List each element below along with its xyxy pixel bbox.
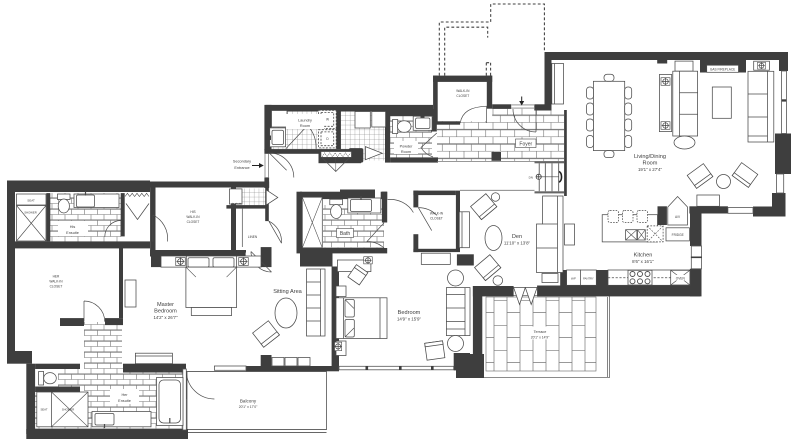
svg-text:CLOSET: CLOSET bbox=[187, 220, 200, 224]
svg-text:GAS FIREPLACE: GAS FIREPLACE bbox=[710, 67, 735, 71]
svg-text:HER: HER bbox=[53, 275, 60, 279]
svg-text:Bedroom: Bedroom bbox=[154, 309, 177, 315]
svg-text:Kitchen: Kitchen bbox=[634, 253, 653, 259]
svg-text:His: His bbox=[70, 225, 76, 229]
svg-text:WALK-IN: WALK-IN bbox=[186, 215, 200, 219]
svg-text:SEAT: SEAT bbox=[27, 199, 35, 203]
svg-text:SHOWER: SHOWER bbox=[62, 408, 75, 412]
svg-text:Bath: Bath bbox=[340, 231, 351, 237]
svg-text:Balcony: Balcony bbox=[240, 399, 257, 404]
svg-text:Foyer: Foyer bbox=[519, 142, 532, 148]
svg-text:Entrance: Entrance bbox=[234, 166, 249, 170]
svg-text:14'2" x 26'7": 14'2" x 26'7" bbox=[153, 315, 178, 320]
svg-text:WALK-IN: WALK-IN bbox=[49, 280, 63, 284]
svg-text:Ensuite: Ensuite bbox=[66, 231, 79, 235]
svg-text:Den: Den bbox=[512, 234, 522, 240]
svg-text:Powder: Powder bbox=[400, 145, 414, 149]
svg-text:SEAT: SEAT bbox=[40, 408, 47, 412]
svg-text:Room: Room bbox=[643, 161, 658, 167]
svg-text:Bedroom: Bedroom bbox=[398, 310, 421, 316]
svg-text:Terrace: Terrace bbox=[534, 330, 547, 334]
svg-text:LINEN: LINEN bbox=[248, 235, 258, 239]
svg-text:Master: Master bbox=[157, 302, 174, 308]
svg-text:20'1" x 17'0": 20'1" x 17'0" bbox=[239, 405, 258, 409]
svg-text:WALK-IN: WALK-IN bbox=[456, 89, 470, 93]
svg-text:FRIDGE: FRIDGE bbox=[672, 233, 684, 237]
svg-text:WALK-IN: WALK-IN bbox=[430, 212, 444, 216]
svg-text:PANTRY: PANTRY bbox=[583, 276, 594, 280]
svg-text:OVEN: OVEN bbox=[676, 276, 686, 280]
svg-text:W/F: W/F bbox=[571, 276, 576, 280]
svg-text:CLOSET: CLOSET bbox=[456, 94, 469, 98]
svg-text:8'6" x 16'1": 8'6" x 16'1" bbox=[632, 259, 654, 264]
svg-text:11'10" x 13'8": 11'10" x 13'8" bbox=[504, 241, 531, 246]
svg-text:A/V: A/V bbox=[675, 215, 681, 219]
svg-text:CLOSET: CLOSET bbox=[430, 217, 443, 221]
svg-text:Secondary: Secondary bbox=[233, 160, 251, 164]
svg-text:Living/Dining: Living/Dining bbox=[634, 154, 666, 160]
svg-text:Room: Room bbox=[401, 150, 411, 154]
svg-text:Laundry: Laundry bbox=[298, 119, 312, 123]
svg-text:DN: DN bbox=[529, 176, 533, 180]
svg-text:19'1" x 27'4": 19'1" x 27'4" bbox=[638, 167, 663, 172]
svg-text:Ensuite: Ensuite bbox=[118, 399, 131, 403]
svg-text:CLOSET: CLOSET bbox=[50, 285, 63, 289]
svg-text:20'1" x 14'9": 20'1" x 14'9" bbox=[531, 336, 550, 340]
svg-text:HIS: HIS bbox=[190, 210, 195, 214]
svg-text:Her: Her bbox=[121, 393, 128, 397]
svg-text:Sitting Area: Sitting Area bbox=[273, 289, 302, 295]
svg-text:14'9" x 15'9": 14'9" x 15'9" bbox=[397, 317, 422, 322]
svg-text:Room: Room bbox=[300, 124, 310, 128]
svg-text:W: W bbox=[326, 118, 329, 122]
svg-text:SHOWER: SHOWER bbox=[24, 211, 37, 215]
